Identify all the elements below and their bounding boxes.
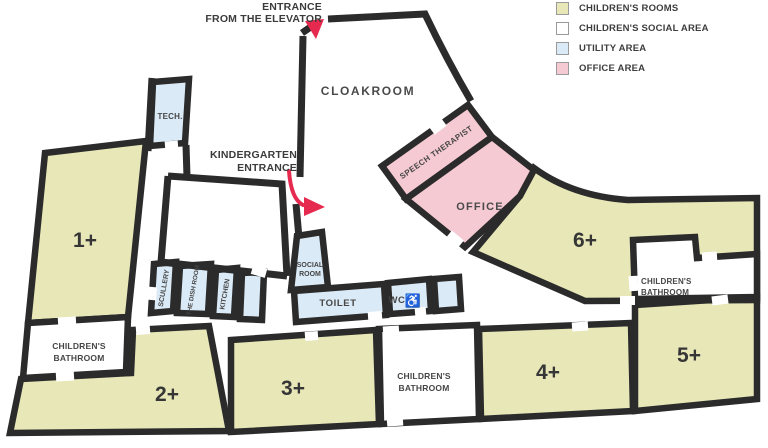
legend: CHILDREN'S ROOMS CHILDREN'S SOCIAL AREA … bbox=[556, 2, 709, 75]
utility-area-swatch bbox=[556, 42, 569, 55]
room-6plus-label: 6+ bbox=[573, 229, 597, 252]
social-room-label-line1: SOCIAL bbox=[297, 262, 324, 269]
elevator-entrance-label-line1: ENTRANCE bbox=[262, 1, 322, 13]
entrance-corridor-wall bbox=[296, 204, 299, 238]
office-label: OFFICE bbox=[456, 201, 504, 213]
wheelchair-icon: ♿ bbox=[405, 293, 421, 308]
room-1plus-label: 1+ bbox=[73, 229, 97, 252]
room-3plus-label: 3+ bbox=[281, 377, 305, 400]
legend-item-childrens-social-area: CHILDREN'S SOCIAL AREA bbox=[556, 22, 709, 35]
bathroom-mid-label-line2: BATHROOM bbox=[398, 383, 449, 393]
social-room-label-line2: ROOM bbox=[299, 271, 321, 278]
bathroom-mid-label-line1: CHILDREN'S bbox=[397, 371, 451, 381]
bathroom-left-label-line2: BATHROOM bbox=[53, 353, 104, 363]
kindergarten-entrance-label-line2: ENTRANCE bbox=[237, 162, 297, 174]
wc-label: WC bbox=[388, 295, 405, 306]
room-2plus-label: 2+ bbox=[155, 383, 179, 406]
office-area-swatch bbox=[556, 62, 569, 75]
legend-label: OFFICE AREA bbox=[579, 63, 645, 74]
room-5plus-label: 5+ bbox=[677, 344, 701, 367]
floor-plan-canvas: ENTRANCE FROM THE ELEVATOR KINDERGARTEN … bbox=[0, 0, 768, 448]
room-4plus-label: 4+ bbox=[536, 361, 560, 384]
bathroom-right-label-line1: CHILDREN'S bbox=[641, 277, 692, 286]
cloakroom-label: CLOAKROOM bbox=[321, 84, 415, 98]
central-room-left-wall bbox=[161, 176, 168, 262]
bathroom-right-label-line2: BATHROOM bbox=[641, 288, 689, 297]
elevator-entrance-label-line2: FROM THE ELEVATOR bbox=[205, 13, 322, 25]
tech-below-stub bbox=[186, 145, 187, 177]
legend-item-childrens-rooms: CHILDREN'S ROOMS bbox=[556, 2, 709, 15]
kindergarten-arrow-head bbox=[304, 197, 325, 216]
legend-item-office-area: OFFICE AREA bbox=[556, 62, 709, 75]
social-room-shape bbox=[291, 232, 328, 290]
legend-label: UTILITY AREA bbox=[579, 43, 646, 54]
childrens-rooms-swatch bbox=[556, 2, 569, 15]
utility-extra2-shape bbox=[434, 277, 461, 311]
bathroom-left-label-line1: CHILDREN'S bbox=[52, 341, 106, 351]
utility-extra-shape bbox=[240, 272, 264, 320]
tech-left-wall bbox=[148, 78, 152, 151]
room-3plus-shape bbox=[231, 330, 379, 432]
legend-label: CHILDREN'S ROOMS bbox=[579, 3, 678, 14]
tech-label: TECH. bbox=[158, 112, 183, 121]
toilet-label: TOILET bbox=[319, 298, 356, 309]
legend-item-utility-area: UTILITY AREA bbox=[556, 42, 709, 55]
legend-label: CHILDREN'S SOCIAL AREA bbox=[579, 23, 709, 34]
kindergarten-entrance-label-line1: KINDERGARTEN bbox=[210, 149, 297, 161]
childrens-social-area-swatch bbox=[556, 22, 569, 35]
central-room-top-wall bbox=[168, 176, 287, 276]
rooms bbox=[10, 79, 757, 433]
cloakroom-left-wall bbox=[300, 36, 303, 177]
